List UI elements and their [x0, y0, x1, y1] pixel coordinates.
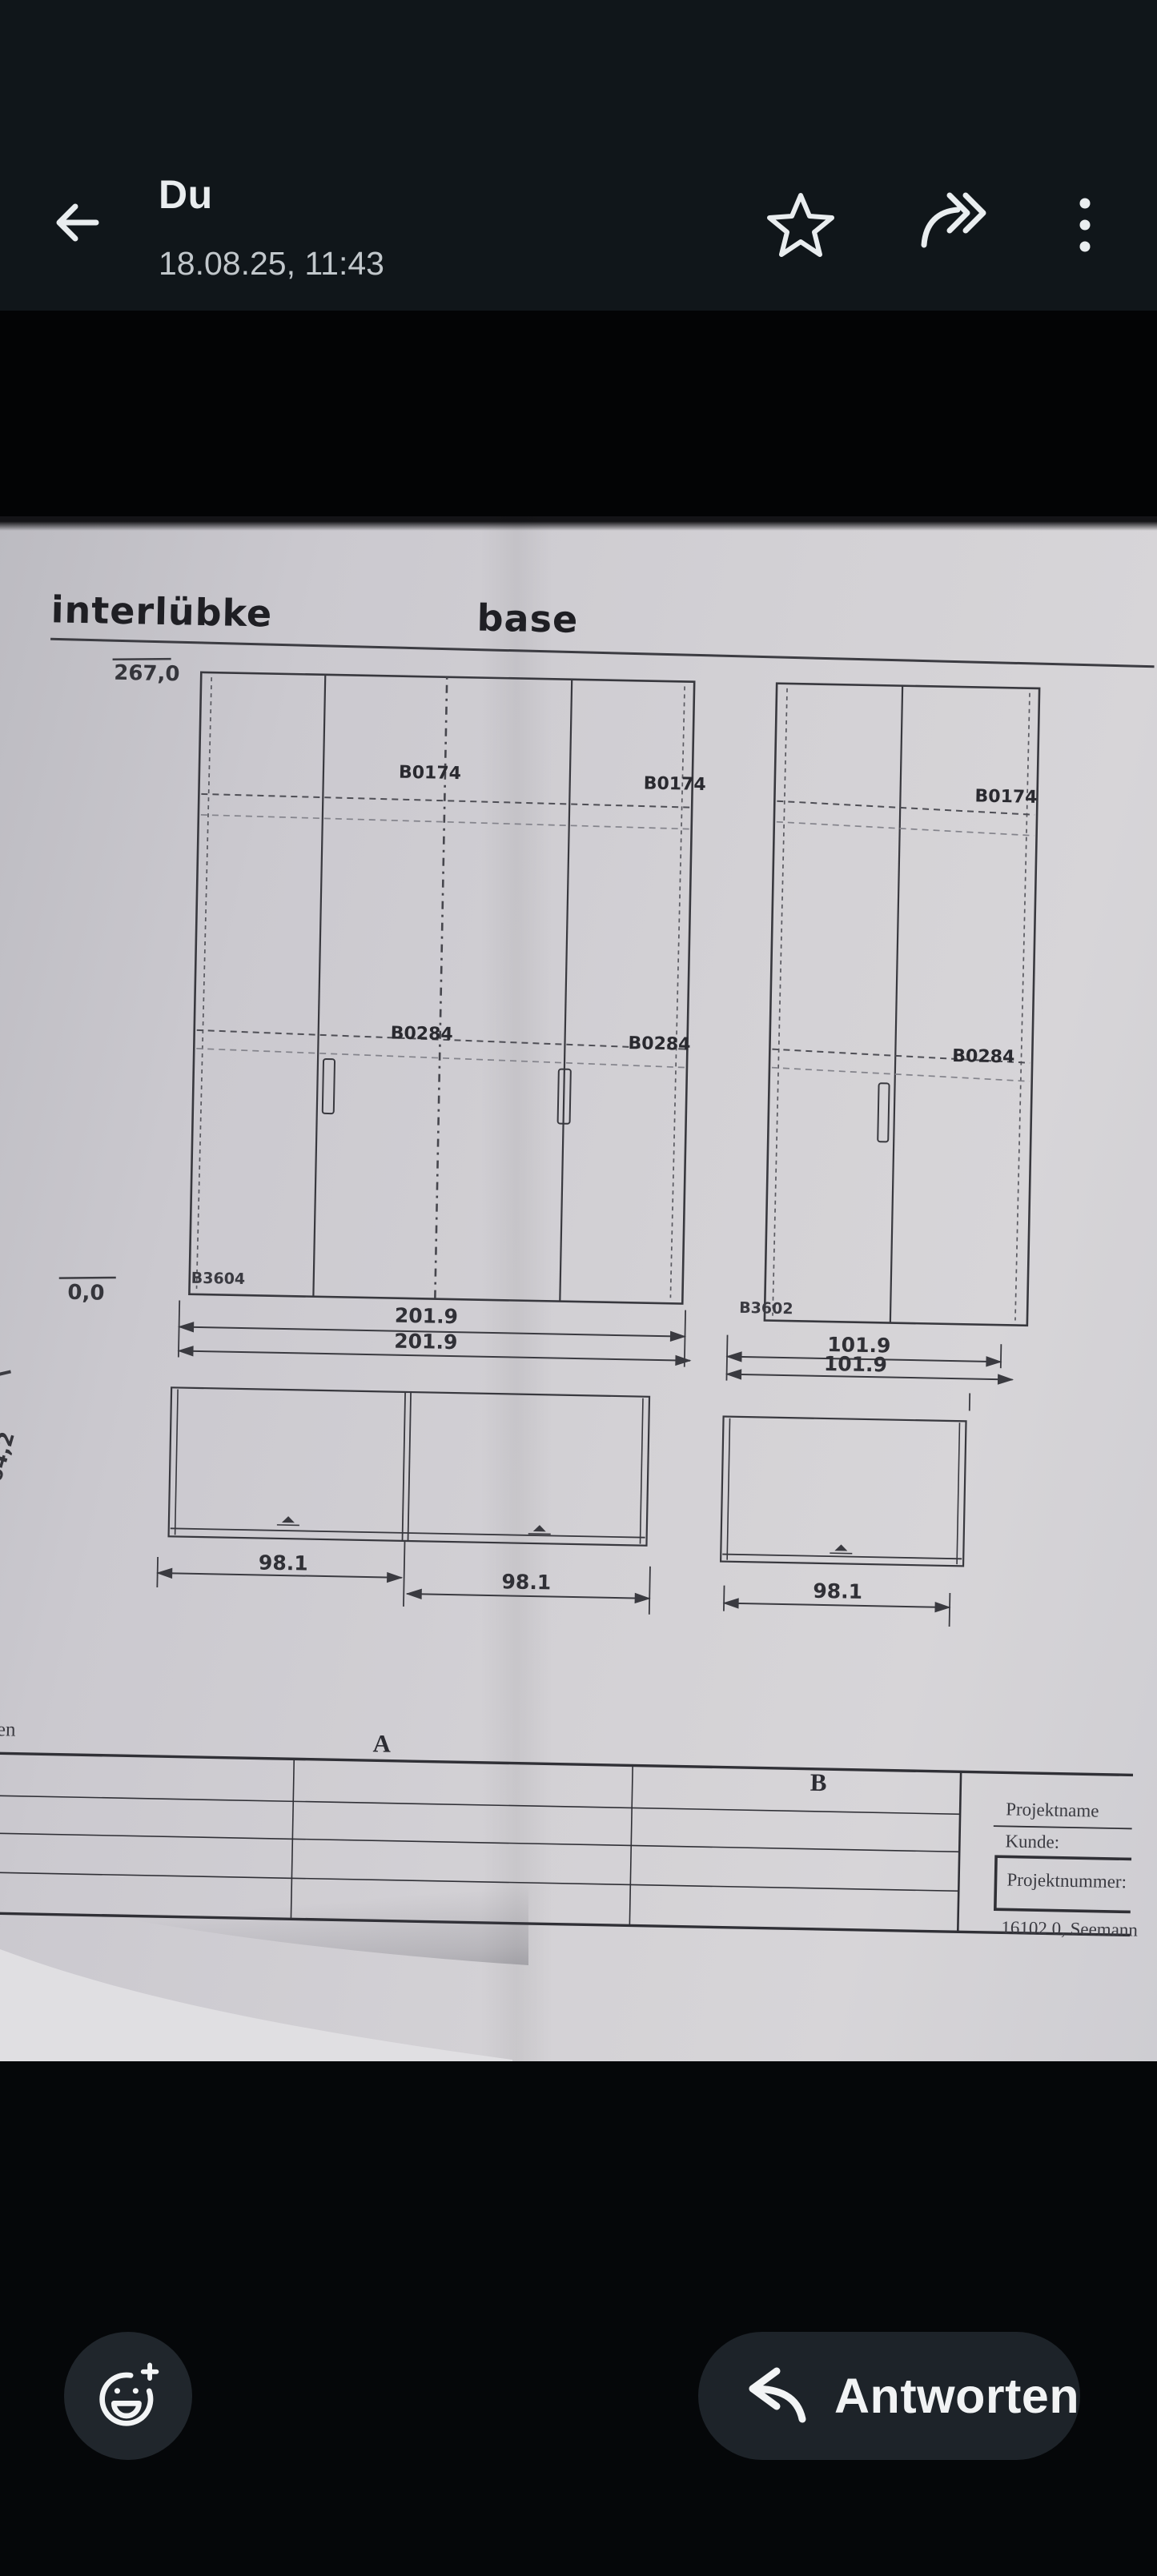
wardrobe-right-elevation: [765, 684, 1039, 1326]
attached-image-technical-drawing[interactable]: interlübke base 267,0 0,0 64,2 eilen B01…: [0, 516, 1157, 2061]
add-reaction-button[interactable]: [64, 2332, 192, 2460]
back-button[interactable]: [34, 179, 122, 267]
dimension-plan-left: [157, 1536, 651, 1615]
element-label: B0174: [974, 786, 1037, 807]
dimension-value: 201.9: [394, 1330, 458, 1354]
element-label: B0174: [399, 763, 461, 784]
dimension-value: 101.9: [824, 1352, 888, 1377]
titleblock-projektnummer: Projektnummer:: [1006, 1869, 1127, 1892]
element-label: B0284: [952, 1046, 1014, 1067]
drawing-linework: [0, 516, 1157, 2061]
dimension-value: 98.1: [813, 1579, 862, 1603]
titleblock-kunde: Kunde:: [1005, 1831, 1059, 1852]
grid-column-letter: A: [372, 1729, 391, 1758]
corpus-label: B3604: [191, 1270, 246, 1288]
plan-view-left: [169, 1387, 649, 1545]
element-label: B0174: [643, 773, 705, 794]
dimension-value: 201.9: [395, 1304, 459, 1329]
reply-button-label: Antworten: [834, 2368, 1079, 2424]
menu-button[interactable]: [1041, 181, 1129, 269]
message-timestamp: 18.08.25, 11:43: [159, 245, 384, 283]
star-icon: [757, 259, 845, 272]
reply-button[interactable]: Antworten: [698, 2332, 1080, 2460]
product-line-text: base: [476, 596, 579, 640]
element-label: B0284: [628, 1033, 690, 1054]
height-ref-bottom: 0,0: [67, 1281, 105, 1306]
bottom-action-bar: Antworten: [0, 2061, 1157, 2576]
forward-button[interactable]: [908, 181, 996, 269]
margin-cut-text: eilen: [0, 1719, 16, 1742]
titleblock-project-id: 16102 0, Seemann: [1001, 1917, 1138, 1940]
titleblock-projektname: Projektname: [1006, 1799, 1099, 1821]
plan-view-right: [721, 1417, 966, 1567]
sheet-rules: [0, 638, 1155, 1549]
brand-logo-text: interlübke: [50, 588, 272, 635]
viewer-background-top: [0, 311, 1157, 516]
height-ref-top: 267,0: [114, 661, 180, 687]
more-vertical-icon: [1041, 259, 1129, 272]
reply-arrow-icon: [698, 2360, 814, 2433]
door-handle: [323, 1059, 335, 1113]
media-viewer-screen: Du 18.08.25, 11:43: [0, 0, 1157, 2576]
star-button[interactable]: [757, 181, 845, 269]
back-arrow-icon: [34, 256, 122, 270]
forward-arrow-icon: [908, 259, 996, 272]
dimension-value: 98.1: [259, 1551, 308, 1575]
dimension-value: 98.1: [501, 1570, 551, 1594]
app-bar: Du 18.08.25, 11:43: [0, 0, 1157, 311]
sender-name: Du: [159, 171, 213, 218]
element-label: B0284: [390, 1023, 452, 1044]
door-handle: [878, 1083, 889, 1142]
grid-column-letter: B: [809, 1768, 826, 1797]
corpus-label: B3602: [739, 1299, 793, 1318]
drawing-sheet: interlübke base 267,0 0,0 64,2 eilen B01…: [0, 516, 1157, 2061]
